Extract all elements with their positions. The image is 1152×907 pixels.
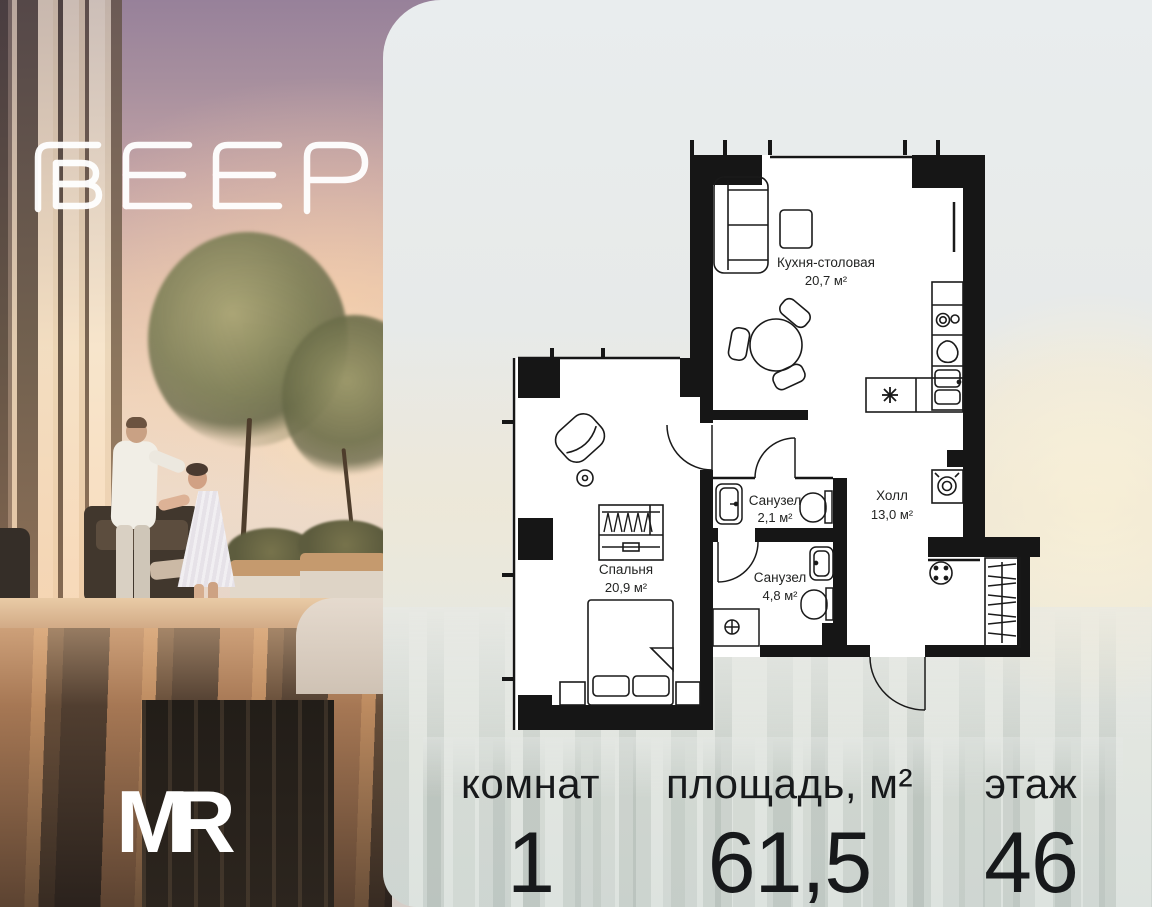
apartment-floorplan: Кухня-столовая 20,7 м² Санузел 2,1 м² Са…: [480, 130, 1040, 730]
stat-rooms: комнат 1: [433, 760, 628, 907]
stat-rooms-label: комнат: [433, 760, 628, 808]
room-area-bath1: 2,1 м²: [758, 510, 794, 525]
stat-area-value: 61,5: [637, 814, 942, 907]
logo-letter-r: [307, 145, 365, 211]
room-label-bath2: Санузел: [754, 570, 807, 585]
room-area-kitchen: 20,7 м²: [805, 273, 848, 288]
man-leg: [116, 525, 133, 605]
woman-hair: [186, 463, 208, 476]
stat-area-label: площадь, м²: [637, 760, 942, 808]
room-label-hall: Холл: [876, 488, 908, 503]
stat-rooms-value: 1: [433, 814, 628, 907]
floor-area: [512, 155, 1030, 730]
man-leg: [134, 525, 150, 607]
room-area-bedroom: 20,9 м²: [605, 580, 648, 595]
room-label-bath1: Санузел: [749, 493, 802, 508]
entry-door: [870, 657, 925, 710]
logo-letter-v: [38, 145, 98, 209]
balcony-parapet: [296, 598, 392, 694]
stat-area: площадь, м² 61,5: [637, 760, 942, 907]
room-label-kitchen: Кухня-столовая: [777, 255, 875, 270]
room-label-bedroom: Спальня: [599, 562, 653, 577]
veer-brand-logo: [26, 133, 378, 219]
room-area-bath2: 4,8 м²: [763, 588, 799, 603]
mr-developer-logo: MR: [116, 778, 316, 866]
man-hair: [126, 417, 147, 428]
stat-floor-label: этаж: [942, 760, 1120, 808]
listing-image: MR: [0, 0, 1152, 907]
stat-floor: этаж 46: [942, 760, 1120, 907]
hob-symbol: [882, 387, 898, 403]
room-area-hall: 13,0 м²: [871, 507, 914, 522]
stat-floor-value: 46: [942, 814, 1120, 907]
